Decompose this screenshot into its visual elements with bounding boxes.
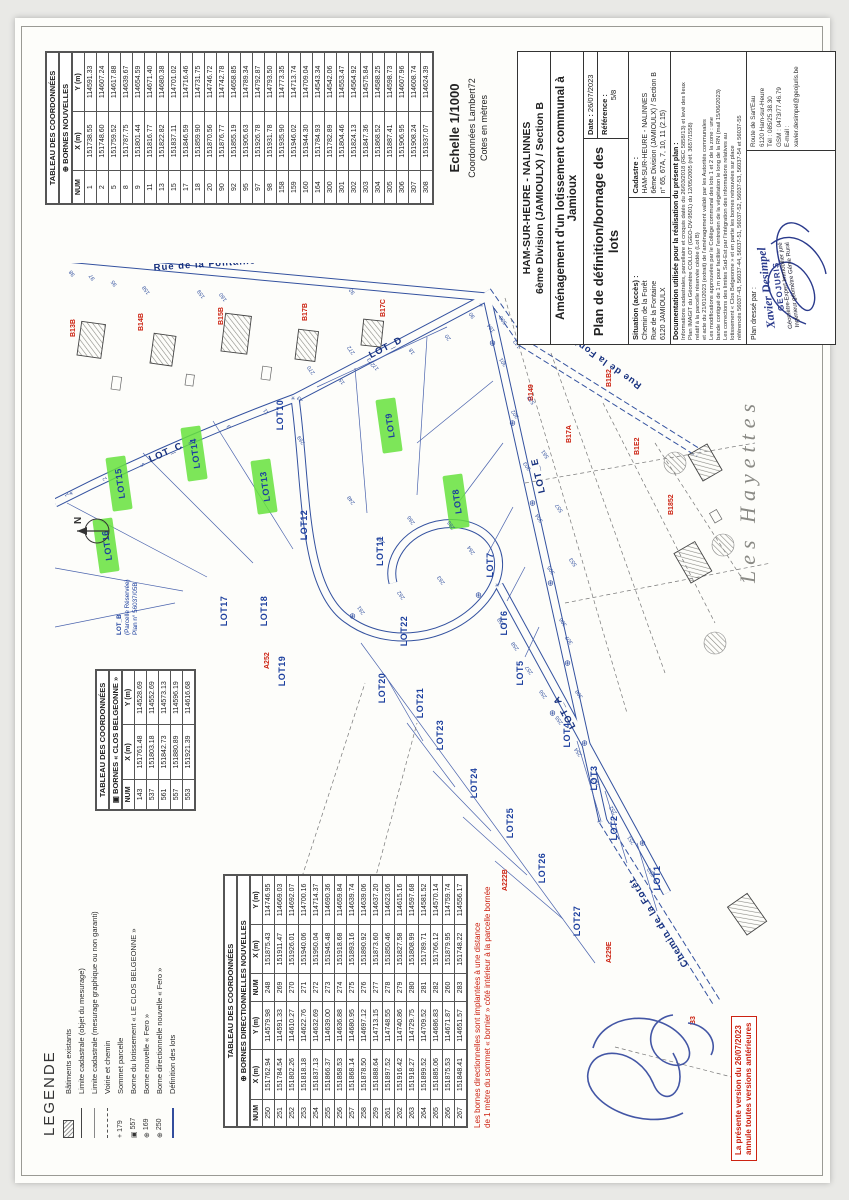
- scanned-plan-page: LOT1LOT2LOT3LOT4LOT5LOT6LOT7LOT8LOT9LOT1…: [15, 18, 830, 1183]
- borne-mark-icon: ⊕: [348, 613, 357, 620]
- lot-b-note: LOT_B(Parcelle Réservée)Plan n° 56037/05…: [116, 579, 139, 635]
- table-row: 537151803.18114552.69: [147, 671, 159, 810]
- survey-point-number: 90: [468, 311, 476, 319]
- column-header: X (m): [251, 924, 263, 973]
- scale-block: Echelle 1/1000 Coordonnées Lambert72 Cot…: [447, 53, 490, 203]
- bold-symbol-icon: [172, 1094, 174, 1138]
- borne-mark-icon: ⊕: [548, 710, 557, 717]
- survey-point-number: 557: [554, 502, 564, 513]
- legend-item: ⊕169Borne nouvelle « Fero »: [140, 790, 153, 1138]
- borne-mark-icon: ⊕: [474, 592, 483, 599]
- approval-paraph-scribble: [563, 993, 723, 1143]
- date-label: Date :: [586, 114, 595, 135]
- signature-cell: Plan dressé par : Xavier Desimpel GEOJUR…: [747, 151, 835, 344]
- survey-point-number: 266: [406, 514, 416, 525]
- table-row: 303151847.36114575.84: [361, 53, 373, 204]
- lot-label: LOT19: [277, 656, 287, 687]
- shed-footprint: [111, 376, 122, 390]
- table-row: 258151878.50114697.12276151890.92114639.…: [359, 876, 371, 1127]
- lot-label: LOT7: [485, 552, 495, 577]
- table-row: 143151761.48114528.69: [135, 671, 147, 810]
- table-row: 267151848.41114651.57283151748.22114556.…: [455, 876, 467, 1127]
- junction-star-icon: ✳: [494, 582, 501, 587]
- column-header: X (m): [123, 725, 135, 780]
- division-name: 6ème Division (JAMIOULX) / Section B: [534, 54, 547, 342]
- circle-symbol-icon: ⊕169: [143, 1094, 151, 1138]
- column-header: Y (m): [251, 876, 263, 925]
- lot-label: LOT21: [415, 688, 425, 719]
- parcel-number-label: A229E: [606, 941, 613, 963]
- documentation-line: et acte du 21/01/2023 (extrait) de l'amé…: [702, 56, 709, 340]
- date-value: 26/07/2023: [586, 75, 595, 113]
- version-note: La présente version du 26/07/2023 annule…: [731, 1017, 757, 1162]
- legend-item: Bâtiments existants: [62, 790, 75, 1138]
- parcel-number-label: B1852: [668, 494, 675, 515]
- situation-field: Situation (accès) : Chemin de la ForêtRu…: [629, 198, 670, 345]
- units-label: Cotes en mètres: [478, 53, 490, 203]
- documentation-line: référencés 56037-43, 56037-44, 56037-51,…: [737, 56, 744, 340]
- table-row: 9151801.44114654.59: [133, 53, 145, 204]
- building-footprint: [727, 893, 766, 935]
- thin-symbol-icon: [94, 1094, 95, 1138]
- survey-point-number: 18: [408, 347, 416, 355]
- survey-point-number: 553: [568, 556, 578, 567]
- documentation-line: Les modifications approuvées par le Coll…: [709, 56, 716, 340]
- tree-icon: [712, 534, 734, 556]
- project-title: Aménagement d'un lotissement communal à …: [551, 52, 584, 344]
- table-row: 257151868.14114680.95275151893.16114639.…: [347, 876, 359, 1127]
- reference-value: 5/8: [609, 55, 618, 135]
- table-row: 306151906.95114607.96: [397, 53, 409, 204]
- contact-line: E-mail : xavier.desimpel@geojuris.be: [784, 55, 801, 147]
- table-row: 557151880.89114596.19: [171, 671, 183, 810]
- square-symbol-icon: ▣557: [130, 1094, 138, 1138]
- line-symbol-icon: [81, 1094, 82, 1138]
- table-row: 302151824.13114564.92: [349, 53, 361, 204]
- building-footprint: [77, 321, 105, 358]
- contact-line: 6120 Ham-sur-Heure: [759, 55, 768, 147]
- lot-label: LOT5: [515, 660, 525, 685]
- situation-line: Chemin de la Forêt: [641, 203, 650, 341]
- parcel-number-label: B1B2: [606, 369, 613, 387]
- hatch-symbol-icon: [63, 1094, 74, 1138]
- lot-label: LOT12: [299, 510, 309, 541]
- survey-point-number: 256: [538, 688, 548, 699]
- table-row: 13151822.82114680.38: [157, 53, 169, 204]
- table-row: 304151868.52114588.25: [373, 53, 385, 204]
- table-subtitle: ⊕ BORNES NOUVELLES: [59, 52, 72, 204]
- table-row: 266151875.53114671.87260151879.95114759.…: [443, 876, 455, 1127]
- survey-point-number: 95: [110, 279, 118, 287]
- building-footprint: [221, 313, 251, 354]
- table-row: 98151931.78114793.50: [265, 53, 277, 204]
- column-header: Y (m): [73, 53, 85, 112]
- shed-footprint: [710, 509, 722, 523]
- junction-star-icon: ✳: [68, 490, 75, 495]
- documentation-line: Plan IMAGIT du Géomètre COLLOT (GEO-DV-9…: [688, 56, 695, 340]
- title-block: HAM-SUR-HEURE - NALINNES 6ème Division (…: [517, 51, 836, 345]
- legend-item-label: Borne nouvelle « Fero »: [142, 1014, 151, 1094]
- plan-sheet: LOT1LOT2LOT3LOT4LOT5LOT6LOT7LOT8LOT9LOT1…: [15, 18, 830, 1183]
- legend-item: Limite cadastrale (mesurage graphique ou…: [88, 790, 101, 1138]
- table-row: 97151926.78114792.87: [253, 53, 265, 204]
- legend-item-label: Définition des lots: [168, 1035, 177, 1094]
- table-row: 254151837.13114632.69272151950.04114714.…: [311, 876, 323, 1127]
- place-name-label: Les Hayettes: [735, 398, 760, 584]
- borne-mark-icon: ⊕: [546, 580, 555, 587]
- borne-mark-icon: ⊕: [563, 660, 572, 667]
- contact-info: Route de Sart'Eau6120 Ham-sur-HeureTél :…: [747, 52, 835, 151]
- table-row: 263151918.27114729.75280151808.99114597.…: [407, 876, 419, 1127]
- table-row: 17151846.59114716.46: [181, 53, 193, 204]
- table-row: 251151784.54114591.33269151911.47114669.…: [275, 876, 287, 1127]
- table-row: 90151876.77114742.78: [217, 53, 229, 204]
- survey-point-number: 561: [540, 448, 550, 459]
- table-subtitle: ⊕ BORNES DIRECTIONNELLES NOUVELLES: [237, 875, 250, 1127]
- table-row: 255151866.37114639.00273151945.48114690.…: [323, 876, 335, 1127]
- plan-title: Plan de définition/bornage des lots: [584, 138, 628, 344]
- dashdot-symbol-icon: [107, 1094, 108, 1138]
- lot-label: LOT1: [652, 865, 662, 890]
- column-header: NUM: [251, 1099, 263, 1126]
- cadastre-field: Cadastre : HAM-SUR-HEURE - NALINNES6ème …: [629, 52, 670, 198]
- borne-mark-icon: ⊕: [528, 500, 537, 507]
- parcel-number-label: B14B: [138, 313, 145, 331]
- column-header: NUM: [73, 171, 85, 204]
- tree-icon: [704, 632, 726, 654]
- table-row: 20151870.56114746.72: [205, 53, 217, 204]
- junction-star-icon: ✳: [478, 302, 485, 307]
- table-row: 301151804.46114553.47: [337, 53, 349, 204]
- contact-line: Route de Sart'Eau: [750, 55, 759, 147]
- lot-b-note-line: (Parcelle Réservée): [124, 579, 131, 635]
- survey-point-number: 261: [356, 604, 366, 615]
- lot-label: LOT2: [609, 815, 619, 840]
- table-row: 5151759.52114617.88: [109, 53, 121, 204]
- legend-item-label: Bâtiments existants: [64, 1029, 73, 1094]
- legend-item-label: Limite cadastrale (objet du mesurage): [77, 968, 86, 1094]
- table-row: 159151946.02114713.74: [289, 53, 301, 204]
- lot-label: LOT27: [572, 906, 582, 937]
- survey-point-number: 20: [444, 333, 452, 341]
- table-row: 15151837.11114701.02: [169, 53, 181, 204]
- lot-label: LOT18: [259, 596, 269, 627]
- table-row: 305151887.41114598.73: [385, 53, 397, 204]
- shed-footprint: [185, 374, 194, 386]
- building-footprint: [674, 542, 712, 583]
- table-row: 261151897.52114748.55278151850.46114623.…: [383, 876, 395, 1127]
- parcel-number-label: B13B: [70, 319, 77, 337]
- documentation-line: relatif à la parcelle réservée cédée (Lo…: [695, 56, 702, 340]
- borne-mark-icon: ⊕: [580, 740, 589, 747]
- coordinate-system-label: Coordonnées Lambert72: [466, 53, 478, 203]
- lot-label: LOT20: [377, 673, 387, 704]
- lot-label: LOT17: [219, 596, 229, 627]
- column-header: X (m): [73, 111, 85, 171]
- junction-star-icon: ✳: [290, 395, 297, 400]
- scale-label: Echelle 1/1000: [447, 53, 462, 203]
- documentation-line: bande contiguë de 1 m pour faciliter l'e…: [716, 56, 723, 340]
- legend-item-label: Limite cadastrale (mesurage graphique ou…: [90, 911, 99, 1094]
- parcel-number-label: B17C: [380, 299, 387, 317]
- survey-point-number: 248: [346, 494, 356, 505]
- lot-label: LOT22: [399, 616, 409, 647]
- svg-text:N: N: [73, 517, 84, 524]
- situation-line: Rue de la Fontaine: [650, 203, 659, 341]
- cadastre-line: HAM-SUR-HEURE - NALINNES: [641, 56, 650, 194]
- building-footprint: [295, 329, 319, 361]
- legend-title: LEGENDE: [41, 790, 58, 1136]
- column-header: Y (m): [123, 671, 135, 725]
- survey-point-number: 257: [524, 664, 534, 675]
- survey-point-number: 258: [510, 640, 520, 651]
- documentation-line: Informations cadastrales, parcellaire et…: [681, 56, 688, 340]
- table-row: 259151888.64114713.15277151873.60114637.…: [371, 876, 383, 1127]
- legend-item: ▣557Borne du lotissement « LE CLOS BELGE…: [127, 790, 140, 1138]
- legend: LEGENDE Bâtiments existantsLimite cadast…: [41, 790, 179, 1138]
- legend-item: +179Sommet parcelle: [114, 790, 127, 1138]
- table-title: TABLEAU DES COORDONNÉES: [96, 670, 109, 810]
- table-row: 252151802.26114610.27270151926.01114692.…: [287, 876, 299, 1127]
- table-row: 2151748.60114607.24: [97, 53, 109, 204]
- table-title: TABLEAU DES COORDONNÉES: [46, 52, 59, 204]
- table-row: 253151818.18114622.76271151940.06114700.…: [299, 876, 311, 1127]
- road-name-label: LOT_C: [147, 440, 184, 465]
- lot-label: LOT10: [275, 400, 285, 431]
- table-row: 264151899.52114709.52281151789.71114581.…: [419, 876, 431, 1127]
- table-row: 92151855.19114658.85: [229, 53, 241, 204]
- lot-b-note-line: LOT_B: [116, 614, 123, 635]
- column-header: Y (m): [251, 1001, 263, 1050]
- table-subtitle: ▣ BORNES « CLOS BELGEONNE »: [109, 670, 122, 810]
- legend-item: Limite cadastrale (objet du mesurage): [75, 790, 88, 1138]
- parcel-number-label: A222B: [502, 869, 509, 891]
- table-row: 160151944.30114709.04: [301, 53, 313, 204]
- circle-symbol-icon: ⊕250: [156, 1094, 164, 1138]
- legend-item-label: Sommet parcelle: [116, 1038, 125, 1094]
- building-footprint: [361, 319, 384, 347]
- table-bornes-clos-belgeonne: TABLEAU DES COORDONNÉES ▣ BORNES « CLOS …: [95, 669, 196, 811]
- table-row: 307151908.24114608.74: [409, 53, 421, 204]
- legend-item-label: Borne directionnelle nouvelle « Fero »: [155, 968, 164, 1094]
- table-row: 1151738.55114591.33: [85, 53, 97, 204]
- survey-point-number: 262: [396, 589, 406, 600]
- survey-point-number: 97: [88, 273, 96, 281]
- tree-icon: [664, 452, 686, 474]
- legend-item: Voirie et chemin: [101, 790, 114, 1138]
- table-title: TABLEAU DES COORDONNÉES: [224, 875, 237, 1127]
- column-header: X (m): [251, 1050, 263, 1099]
- survey-point-number: 159: [196, 288, 206, 299]
- lot-label: LOT25: [505, 808, 515, 839]
- legend-item: Définition des lots: [166, 790, 179, 1138]
- survey-point-number: 160: [218, 291, 228, 302]
- table-row: 561151842.73114573.13: [159, 671, 171, 810]
- parcel-number-label: B17A: [566, 425, 573, 443]
- borne-mark-icon: ⊕: [638, 840, 647, 847]
- borne-mark-icon: ⊕: [488, 340, 497, 347]
- documentation-line: lotissement « Clos Belgeonne » et en par…: [730, 56, 737, 340]
- table-row: 158151935.90114773.35: [277, 53, 289, 204]
- table-row: 8151787.75114639.67: [121, 53, 133, 204]
- commune-name: HAM-SUR-HEURE - NALINNES: [521, 54, 534, 342]
- survey-point-number: 272: [346, 344, 356, 355]
- cross-symbol-icon: +179: [117, 1094, 124, 1138]
- table-row: 11151816.77114671.40: [145, 53, 157, 204]
- parcel-number-label: B15B: [218, 307, 225, 325]
- table-bornes-directionnelles: TABLEAU DES COORDONNÉES ⊕ BORNES DIRECTI…: [223, 828, 493, 1128]
- lot-label: LOT24: [469, 768, 479, 799]
- documentation-line: Les corrections des limites Sud-Est par …: [723, 56, 730, 340]
- building-footprint: [150, 333, 176, 366]
- cadastre-line: n° 65, 67A, 7, 10, 11 (2.15): [659, 56, 668, 194]
- lot-label: LOT23: [435, 720, 445, 751]
- table-row: 265151885.06114686.83282151766.12114570.…: [431, 876, 443, 1127]
- table-row: 256151858.53114636.88274151918.68114659.…: [335, 876, 347, 1127]
- contact-line: GSM : 0473/77.46.79: [776, 55, 785, 147]
- lot-b-note-line: Plan n° 56037/05B: [131, 582, 139, 635]
- table-row: 95151905.63114789.34: [241, 53, 253, 204]
- table-row: 300151782.89114542.06: [325, 53, 337, 204]
- table-row: 250151762.94114579.98248151875.43114746.…: [263, 876, 275, 1127]
- legend-item-label: Borne du lotissement « LE CLOS BELGEONNE…: [129, 929, 138, 1095]
- situation-line: 6120 JAMIOULX: [659, 203, 668, 341]
- parcel-number-label: B17B: [302, 303, 309, 321]
- directional-note: Les bornes directionnelles sont implanté…: [473, 828, 493, 1128]
- legend-item: ⊕250Borne directionnelle nouvelle « Fero…: [153, 790, 166, 1138]
- table-row: 553151921.39114616.68: [183, 671, 195, 810]
- column-header: NUM: [123, 779, 135, 809]
- documentation-field: Documentation utilisée pour la réalisati…: [671, 52, 747, 344]
- parcel-number-label: A252: [264, 652, 271, 669]
- shed-footprint: [261, 366, 272, 380]
- contact-line: Tél : 085/25.38.30: [767, 55, 776, 147]
- survey-point-number: 98: [68, 269, 76, 277]
- survey-point-number: 264: [466, 544, 476, 555]
- survey-point-number: 270: [306, 364, 316, 375]
- survey-point-number: 254: [573, 746, 583, 757]
- survey-point-number: 263: [436, 574, 446, 585]
- table-row: 308151937.07114624.39: [421, 53, 433, 204]
- borne-mark-icon: ⊕: [508, 420, 517, 427]
- cadastre-line: 6ème Division (JAMIOULX) / Section B: [650, 56, 659, 194]
- table-row: 164151784.93114543.34: [313, 53, 325, 204]
- parcel-number-label: B1E2: [634, 437, 641, 455]
- legend-item-label: Voirie et chemin: [103, 1041, 112, 1094]
- reference-label: Référence :: [600, 94, 609, 135]
- table-bornes-nouvelles: TABLEAU DES COORDONNÉES ⊕ BORNES NOUVELL…: [45, 51, 434, 205]
- junction-star-icon: ✳: [596, 818, 603, 823]
- table-row: 18151859.90114731.75: [193, 53, 205, 204]
- lot-label: LOT26: [537, 853, 547, 884]
- table-row: 262151916.42114740.86279151827.58114615.…: [395, 876, 407, 1127]
- column-header: NUM: [251, 974, 263, 1001]
- survey-point-number: 158: [141, 284, 151, 295]
